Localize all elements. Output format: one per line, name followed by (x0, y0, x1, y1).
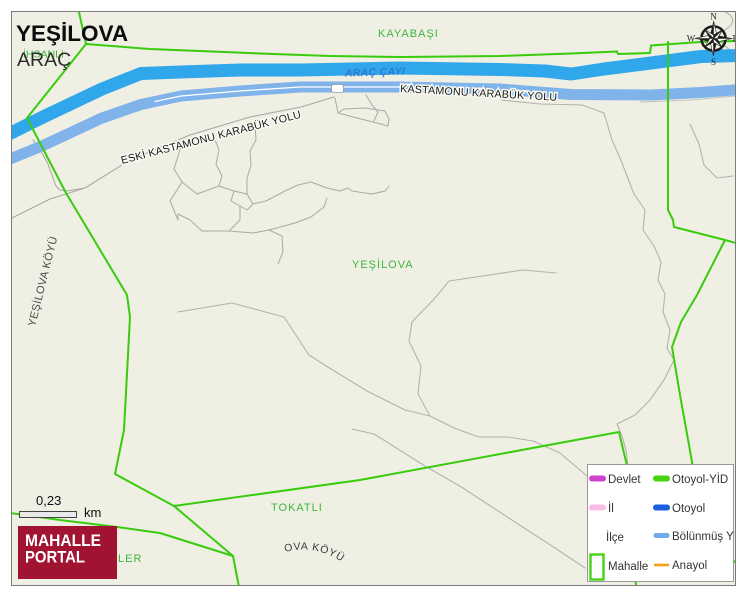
svg-text:S: S (711, 57, 716, 67)
svg-text:YEŞİLOVA KÖYÜ: YEŞİLOVA KÖYÜ (25, 235, 60, 328)
svg-text:MAHALLE: MAHALLE (25, 532, 101, 550)
svg-text:İl: İl (608, 502, 614, 515)
svg-text:km: km (84, 505, 101, 520)
svg-text:W: W (687, 34, 696, 44)
svg-text:Devlet: Devlet (608, 474, 641, 486)
svg-text:ARAÇ ÇAYI: ARAÇ ÇAYI (344, 65, 406, 79)
svg-text:0,23: 0,23 (36, 493, 61, 508)
svg-text:YEŞİLOVA: YEŞİLOVA (352, 258, 414, 271)
svg-text:ARAÇ: ARAÇ (17, 49, 71, 71)
svg-text:LER: LER (118, 553, 142, 565)
svg-text:KAYABAŞI: KAYABAŞI (378, 28, 439, 40)
svg-text:Anayol: Anayol (672, 560, 707, 572)
svg-text:Otoyol: Otoyol (672, 503, 705, 515)
svg-text:İlçe: İlçe (606, 531, 624, 544)
svg-text:Bölünmüş Y: Bölünmüş Y (672, 531, 734, 543)
svg-text:ESKİ KASTAMONU KARABÜK YOLU: ESKİ KASTAMONU KARABÜK YOLU (119, 108, 302, 167)
svg-text:OVA KÖYÜ: OVA KÖYÜ (283, 541, 347, 565)
svg-text:TOKATLI: TOKATLI (271, 502, 323, 514)
svg-text:YEŞİLOVA: YEŞİLOVA (16, 21, 128, 46)
svg-text:E: E (733, 34, 735, 44)
svg-text:N: N (710, 12, 717, 22)
svg-text:Mahalle: Mahalle (608, 561, 648, 573)
svg-text:Otoyol-YİD: Otoyol-YİD (672, 473, 728, 486)
svg-text:PORTAL: PORTAL (25, 549, 85, 567)
